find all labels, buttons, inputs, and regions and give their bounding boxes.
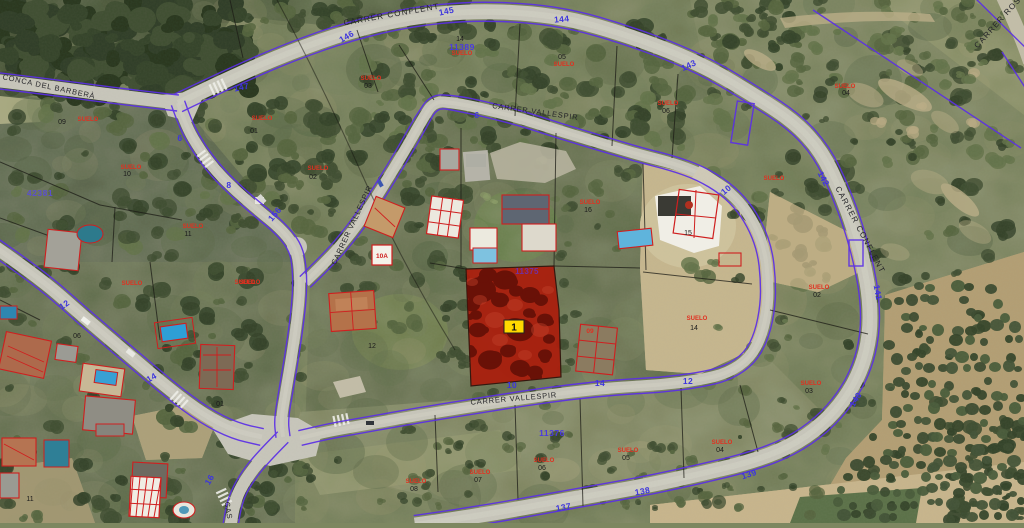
svg-text:01: 01 <box>250 128 258 135</box>
svg-text:02: 02 <box>813 292 821 299</box>
svg-text:11375: 11375 <box>515 267 539 276</box>
svg-text:08: 08 <box>410 486 418 493</box>
svg-text:06: 06 <box>662 108 670 115</box>
svg-text:07: 07 <box>474 477 482 484</box>
svg-text:16: 16 <box>584 207 592 214</box>
svg-text:14: 14 <box>690 325 698 332</box>
svg-text:06: 06 <box>73 333 81 340</box>
svg-text:SUELO: SUELO <box>406 479 427 485</box>
svg-text:144: 144 <box>554 13 570 24</box>
svg-text:1: 1 <box>511 323 517 334</box>
svg-text:11: 11 <box>26 496 33 503</box>
svg-text:SUELO: SUELO <box>554 62 575 68</box>
svg-text:SUELO: SUELO <box>252 116 273 122</box>
svg-text:03: 03 <box>364 83 372 90</box>
svg-text:SUELO: SUELO <box>240 280 261 286</box>
svg-text:6: 6 <box>177 133 182 143</box>
svg-text:14: 14 <box>595 378 605 388</box>
svg-text:SUELO: SUELO <box>712 440 733 446</box>
svg-text:01: 01 <box>216 401 224 408</box>
svg-text:12: 12 <box>368 343 376 350</box>
svg-text:SUELO: SUELO <box>361 76 382 82</box>
svg-text:03: 03 <box>805 388 813 395</box>
svg-text:SUELO: SUELO <box>687 316 708 322</box>
svg-text:SUELO: SUELO <box>534 458 555 464</box>
svg-text:05: 05 <box>622 455 630 462</box>
svg-text:SUELO: SUELO <box>308 166 329 172</box>
svg-text:SUELO: SUELO <box>122 281 143 287</box>
svg-text:10: 10 <box>507 380 517 390</box>
svg-text:SUELO: SUELO <box>658 101 679 107</box>
svg-text:06: 06 <box>538 465 546 472</box>
svg-text:02: 02 <box>309 174 317 181</box>
svg-text:10A: 10A <box>376 253 388 260</box>
svg-text:09: 09 <box>586 328 594 335</box>
svg-text:SUELO: SUELO <box>580 200 601 206</box>
svg-text:SUELO: SUELO <box>801 381 822 387</box>
svg-text:11: 11 <box>184 231 191 238</box>
svg-text:SUELO: SUELO <box>183 224 204 230</box>
svg-text:8: 8 <box>226 180 231 190</box>
svg-text:SUELO: SUELO <box>470 470 491 476</box>
svg-text:SUELO: SUELO <box>78 117 99 123</box>
svg-text:42381: 42381 <box>27 188 53 198</box>
svg-text:15: 15 <box>684 230 692 237</box>
svg-text:09: 09 <box>58 119 66 126</box>
svg-text:11376: 11376 <box>539 428 565 438</box>
svg-text:12: 12 <box>683 376 693 386</box>
svg-text:05: 05 <box>558 54 566 61</box>
svg-text:04: 04 <box>842 90 850 97</box>
svg-text:SUELO: SUELO <box>764 176 785 182</box>
svg-text:10: 10 <box>123 171 131 178</box>
svg-text:04: 04 <box>716 447 724 454</box>
svg-text:SUELO: SUELO <box>618 448 639 454</box>
svg-text:14: 14 <box>456 36 464 43</box>
svg-text:SUELO: SUELO <box>452 51 473 57</box>
svg-text:SUELO: SUELO <box>809 285 830 291</box>
svg-text:6: 6 <box>474 110 479 120</box>
